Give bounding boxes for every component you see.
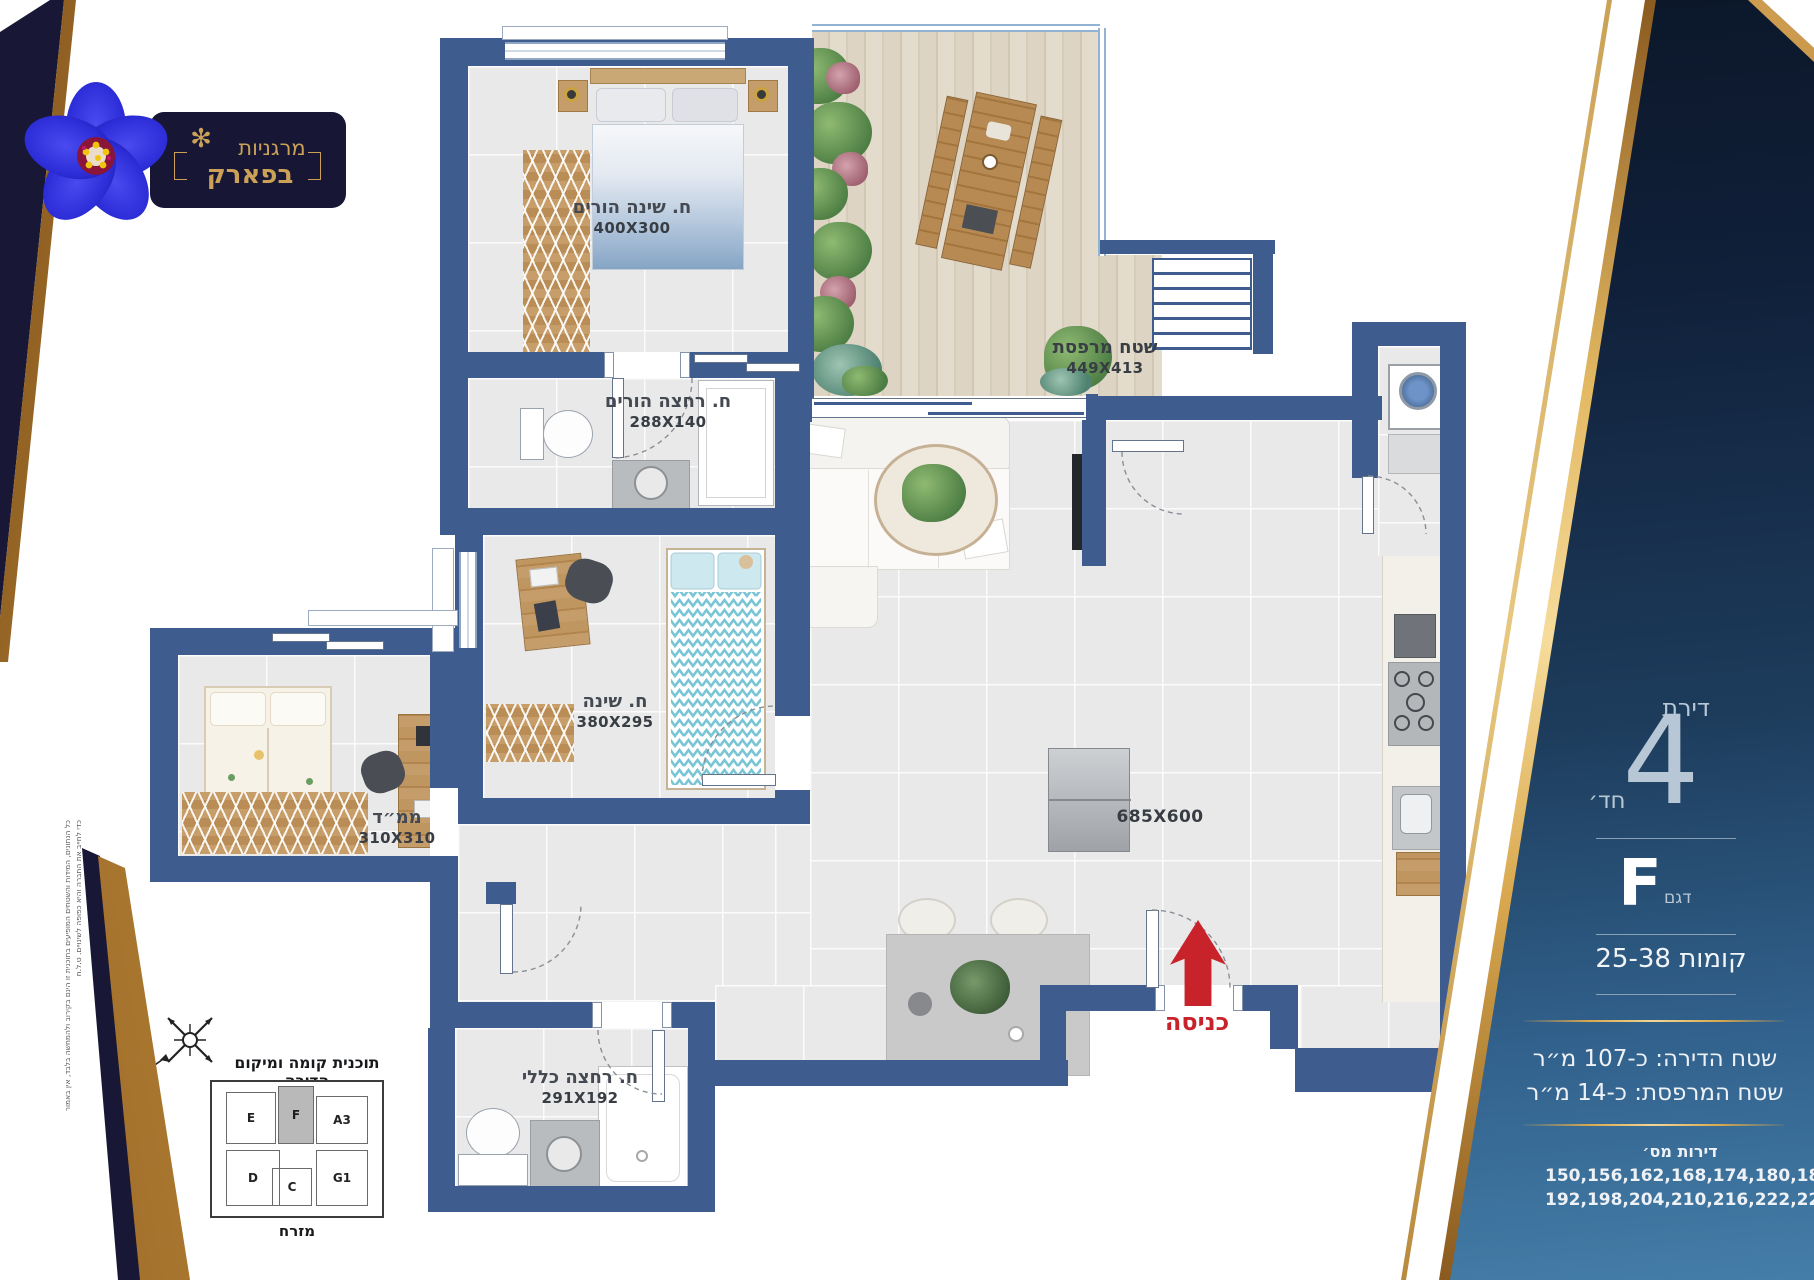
key-unit-C: C <box>272 1168 312 1206</box>
model-label: דגם <box>1664 888 1724 908</box>
key-unit-label: E <box>247 1111 255 1125</box>
key-unit-G1: G1 <box>316 1150 368 1206</box>
room-label-mamad: ממ״ד 310X310 <box>317 806 477 849</box>
compass-icon: צ <box>144 1018 212 1079</box>
disclaimer-text: כל הנתונים, המידות והשטחים המופיעים בתוכ… <box>62 820 85 1112</box>
logo-badge: ✻ מרגניות בפארק <box>150 112 346 208</box>
brand-line2: בפארק <box>190 160 310 190</box>
room-name: ח. רחצה כללי <box>500 1066 660 1089</box>
panel-divider <box>1596 838 1736 839</box>
room-name: ח. רחצה הורים <box>588 390 748 413</box>
flower-image <box>22 80 170 228</box>
entrance-label: כניסה <box>1140 1008 1254 1036</box>
balcony-area: שטח המרפסת: כ-14 מ״ר <box>1520 1080 1790 1106</box>
east-label: מזרח <box>247 1222 347 1240</box>
room-dims: 685X600 <box>1100 806 1220 828</box>
panel-divider <box>1596 994 1736 995</box>
panel-gold-divider <box>1524 1124 1784 1126</box>
room-label-master-bedroom: ח. שינה הורים 400X300 <box>552 196 712 239</box>
apartments-numbers-2: 192,198,204,210,216,222,228 <box>1545 1190 1775 1210</box>
key-unit-E: E <box>226 1092 276 1144</box>
panel-gold-divider <box>1524 1020 1784 1022</box>
room-label-master-bath: ח. רחצה הורים 288X140 <box>588 390 748 433</box>
floors-range: קומות 25-38 <box>1586 944 1756 974</box>
svg-text:צ: צ <box>144 1066 151 1079</box>
panel-divider <box>1596 934 1736 935</box>
apartments-numbers-1: 150,156,162,168,174,180,186 <box>1545 1166 1775 1186</box>
room-dims: 310X310 <box>317 829 477 849</box>
room-dims: 449X413 <box>1025 359 1185 379</box>
room-label-bedroom: ח. שינה 380X295 <box>535 690 695 733</box>
key-unit-label: G1 <box>333 1171 351 1185</box>
room-dims: 400X300 <box>552 219 712 239</box>
key-unit-label: F <box>292 1108 300 1122</box>
room-name: ח. שינה <box>535 690 695 713</box>
poster-canvas: צ ח. שינה הורים 400X300 ח. רחצה הורים 28… <box>0 0 1814 1280</box>
brand-line1: מרגניות <box>212 136 332 160</box>
room-name: שטח מרפסת <box>1025 336 1185 359</box>
rooms-suffix: חד׳ <box>1572 788 1642 814</box>
room-label-living-dims: 685X600 <box>1100 806 1220 828</box>
room-name: ח. שינה הורים <box>552 196 712 219</box>
room-label-balcony: שטח מרפסת 449X413 <box>1025 336 1185 379</box>
room-dims: 291X192 <box>500 1089 660 1109</box>
apartments-title: דירות מס׳ <box>1600 1142 1760 1161</box>
key-unit-F: F <box>278 1086 314 1144</box>
room-label-bath: ח. רחצה כללי 291X192 <box>500 1066 660 1109</box>
key-unit-label: A3 <box>333 1113 351 1127</box>
room-dims: 380X295 <box>535 713 695 733</box>
key-plan: E F A3 D C G1 <box>210 1080 384 1218</box>
room-name: ממ״ד <box>317 806 477 829</box>
key-unit-label: C <box>288 1180 297 1194</box>
room-dims: 288X140 <box>588 413 748 433</box>
logo-bracket-icon <box>174 152 187 180</box>
logo-flower-icon: ✻ <box>188 126 214 152</box>
apartment-area: שטח הדירה: כ-107 מ״ר <box>1520 1046 1790 1072</box>
key-unit-label: D <box>248 1171 258 1185</box>
key-unit-A3: A3 <box>316 1096 368 1144</box>
